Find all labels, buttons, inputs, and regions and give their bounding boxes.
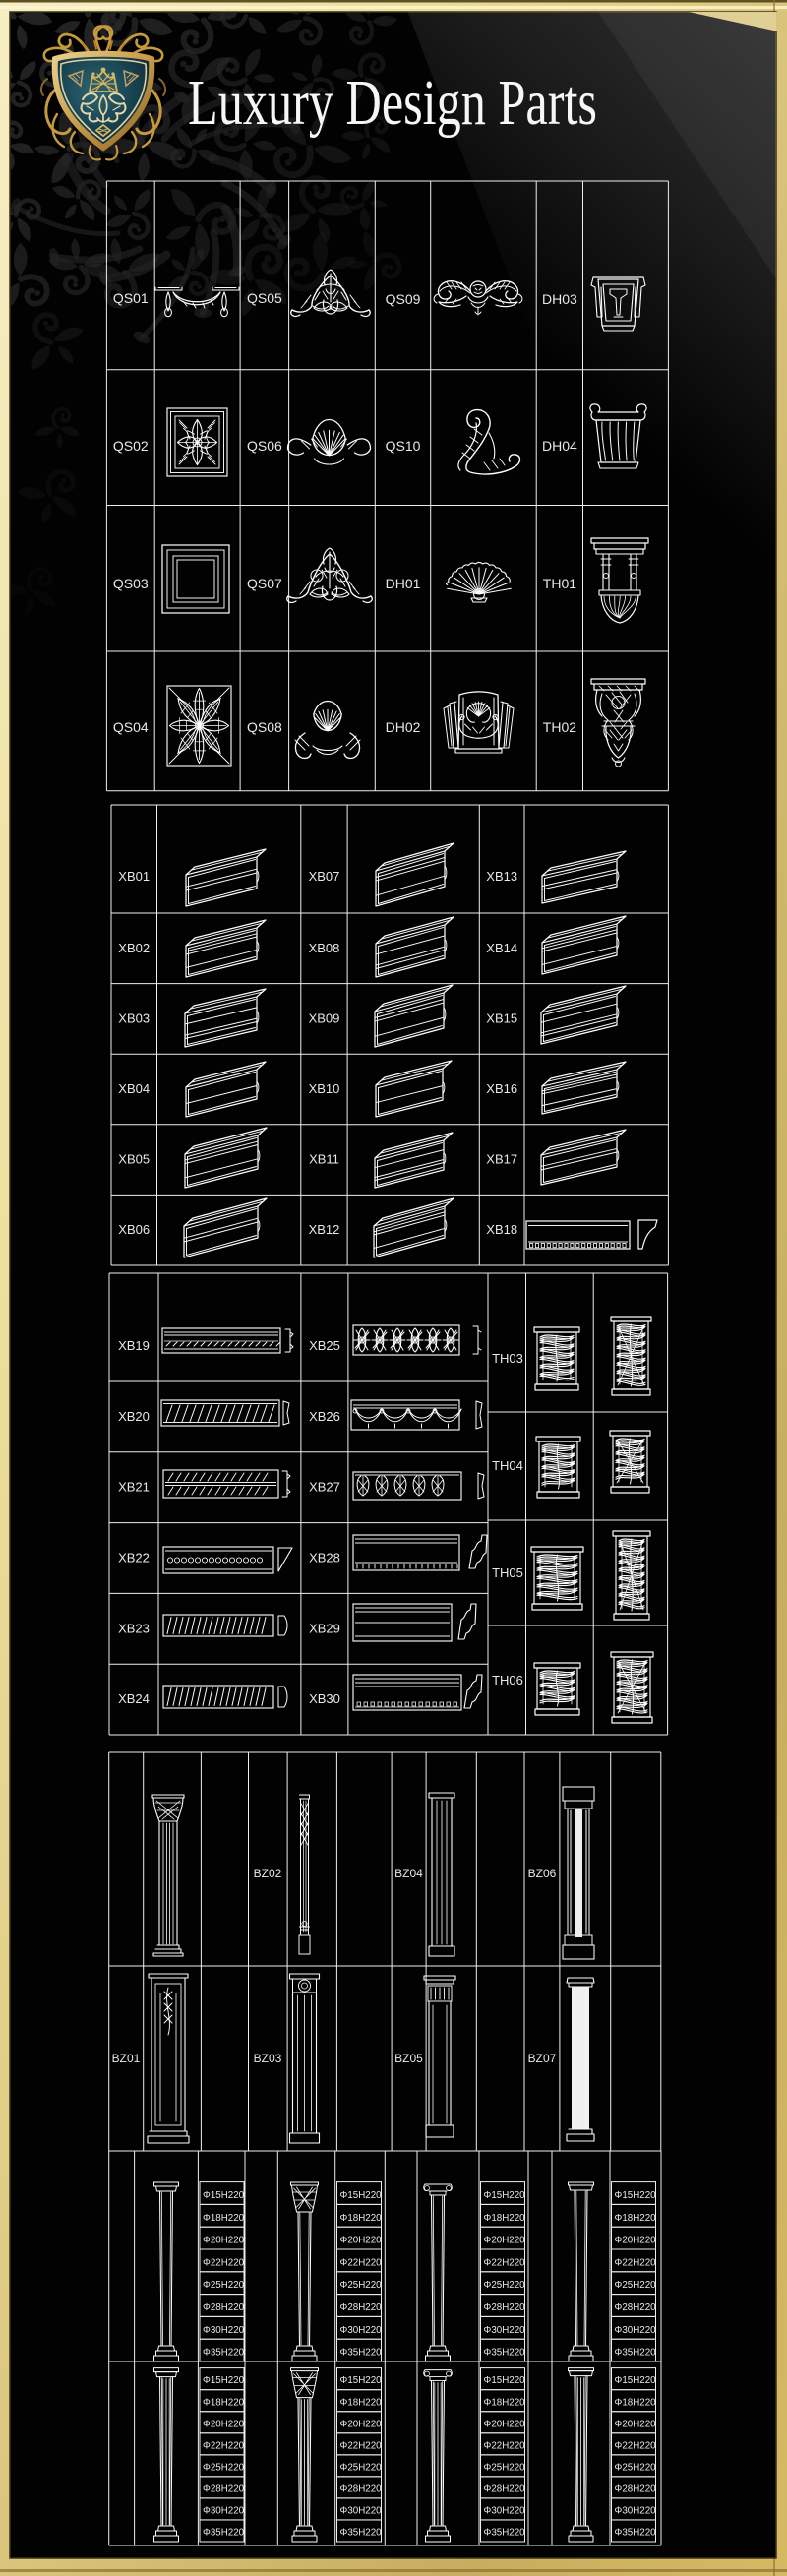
- svg-text:Φ30H220: Φ30H220: [484, 2506, 526, 2517]
- svg-text:Φ15H220: Φ15H220: [484, 2375, 526, 2386]
- svg-text:DH03: DH03: [542, 291, 577, 307]
- svg-text:QS07: QS07: [247, 576, 282, 591]
- svg-text:XB04: XB04: [118, 1081, 150, 1096]
- svg-text:XB11: XB11: [309, 1152, 339, 1167]
- svg-text:TH03: TH03: [492, 1351, 523, 1366]
- svg-text:Φ30H220: Φ30H220: [484, 2325, 526, 2336]
- svg-text:XB09: XB09: [309, 1011, 340, 1025]
- svg-text:Φ18H220: Φ18H220: [484, 2397, 526, 2408]
- svg-text:Φ15H220: Φ15H220: [615, 2375, 657, 2386]
- svg-text:Φ30H220: Φ30H220: [340, 2506, 383, 2517]
- svg-text:Φ15H220: Φ15H220: [203, 2190, 245, 2201]
- svg-text:QS08: QS08: [247, 719, 282, 735]
- svg-text:XB08: XB08: [309, 941, 340, 955]
- svg-text:XB27: XB27: [309, 1480, 340, 1495]
- svg-text:Φ30H220: Φ30H220: [615, 2325, 657, 2336]
- svg-text:Φ20H220: Φ20H220: [203, 2236, 245, 2246]
- svg-text:QS03: QS03: [113, 576, 149, 591]
- svg-text:Φ28H220: Φ28H220: [340, 2484, 383, 2495]
- svg-text:Φ18H220: Φ18H220: [203, 2213, 245, 2224]
- svg-text:Φ25H220: Φ25H220: [203, 2280, 245, 2291]
- svg-text:Φ25H220: Φ25H220: [340, 2280, 383, 2291]
- svg-text:TH06: TH06: [492, 1673, 523, 1687]
- svg-text:Φ25H220: Φ25H220: [484, 2280, 526, 2291]
- svg-text:XB21: XB21: [118, 1480, 150, 1495]
- svg-text:Φ25H220: Φ25H220: [484, 2462, 526, 2473]
- svg-text:QS05: QS05: [247, 290, 282, 306]
- svg-text:Φ20H220: Φ20H220: [203, 2419, 245, 2429]
- svg-text:BZ07: BZ07: [528, 2052, 557, 2065]
- svg-text:XB06: XB06: [118, 1222, 150, 1237]
- svg-text:Φ30H220: Φ30H220: [203, 2506, 245, 2517]
- svg-text:Φ18H220: Φ18H220: [340, 2397, 383, 2408]
- svg-text:Φ22H220: Φ22H220: [340, 2257, 383, 2268]
- svg-text:XB03: XB03: [118, 1011, 150, 1025]
- svg-text:BZ03: BZ03: [254, 2052, 282, 2065]
- svg-text:Φ15H220: Φ15H220: [340, 2375, 383, 2386]
- svg-text:QS06: QS06: [247, 438, 282, 454]
- svg-text:XB05: XB05: [118, 1152, 150, 1167]
- svg-text:XB16: XB16: [486, 1081, 517, 1096]
- svg-text:XB14: XB14: [486, 941, 517, 955]
- svg-text:Φ35H220: Φ35H220: [484, 2528, 526, 2539]
- svg-text:TH01: TH01: [543, 576, 576, 591]
- svg-text:Φ18H220: Φ18H220: [203, 2397, 245, 2408]
- svg-text:Luxury Design Parts: Luxury Design Parts: [188, 67, 597, 139]
- svg-text:Φ22H220: Φ22H220: [484, 2440, 526, 2451]
- svg-text:BZ05: BZ05: [394, 2052, 423, 2065]
- svg-text:Φ25H220: Φ25H220: [340, 2462, 383, 2473]
- svg-text:Φ18H220: Φ18H220: [615, 2397, 657, 2408]
- svg-text:Φ18H220: Φ18H220: [340, 2213, 383, 2224]
- svg-text:Φ22H220: Φ22H220: [615, 2440, 657, 2451]
- svg-text:Φ28H220: Φ28H220: [484, 2302, 526, 2313]
- svg-text:Φ25H220: Φ25H220: [615, 2280, 657, 2291]
- svg-text:XB17: XB17: [486, 1152, 517, 1167]
- svg-text:Φ22H220: Φ22H220: [340, 2440, 383, 2451]
- svg-text:Φ20H220: Φ20H220: [615, 2419, 657, 2429]
- svg-text:TH02: TH02: [543, 719, 576, 735]
- svg-text:XB23: XB23: [118, 1621, 150, 1635]
- svg-text:QS01: QS01: [113, 290, 149, 306]
- svg-text:Φ20H220: Φ20H220: [484, 2236, 526, 2246]
- svg-text:BZ04: BZ04: [394, 1867, 423, 1880]
- svg-text:XB18: XB18: [486, 1222, 517, 1237]
- svg-text:XB28: XB28: [309, 1551, 340, 1565]
- svg-text:Φ35H220: Φ35H220: [203, 2528, 245, 2539]
- svg-text:DH02: DH02: [386, 719, 421, 735]
- svg-text:Φ20H220: Φ20H220: [484, 2419, 526, 2429]
- svg-text:XB13: XB13: [486, 869, 517, 884]
- svg-text:XB20: XB20: [118, 1409, 150, 1424]
- svg-text:Φ28H220: Φ28H220: [484, 2484, 526, 2495]
- svg-text:XB26: XB26: [309, 1409, 340, 1424]
- svg-text:Φ30H220: Φ30H220: [340, 2325, 383, 2336]
- svg-text:QS04: QS04: [113, 719, 149, 735]
- svg-text:Φ28H220: Φ28H220: [340, 2302, 383, 2313]
- svg-text:Φ25H220: Φ25H220: [615, 2462, 657, 2473]
- svg-text:DH01: DH01: [386, 576, 421, 591]
- svg-text:XB01: XB01: [118, 869, 150, 884]
- svg-text:Φ20H220: Φ20H220: [340, 2419, 383, 2429]
- svg-text:Φ15H220: Φ15H220: [340, 2190, 383, 2201]
- svg-text:Φ20H220: Φ20H220: [615, 2236, 657, 2246]
- svg-text:BZ02: BZ02: [254, 1867, 282, 1880]
- svg-text:Φ28H220: Φ28H220: [203, 2484, 245, 2495]
- svg-text:Φ18H220: Φ18H220: [484, 2213, 526, 2224]
- svg-text:Φ15H220: Φ15H220: [615, 2190, 657, 2201]
- svg-text:Φ35H220: Φ35H220: [615, 2528, 657, 2539]
- svg-text:Φ28H220: Φ28H220: [615, 2484, 657, 2495]
- svg-text:Φ35H220: Φ35H220: [615, 2348, 657, 2359]
- svg-text:TH04: TH04: [492, 1458, 523, 1473]
- svg-text:XB29: XB29: [309, 1621, 340, 1635]
- svg-text:XB25: XB25: [309, 1338, 340, 1353]
- svg-text:Φ15H220: Φ15H220: [203, 2375, 245, 2386]
- svg-text:Φ15H220: Φ15H220: [484, 2190, 526, 2201]
- svg-text:Φ22H220: Φ22H220: [484, 2257, 526, 2268]
- svg-text:Φ35H220: Φ35H220: [340, 2528, 383, 2539]
- svg-text:Φ22H220: Φ22H220: [615, 2257, 657, 2268]
- svg-text:XB02: XB02: [118, 941, 150, 955]
- svg-text:Φ35H220: Φ35H220: [203, 2348, 245, 2359]
- svg-text:Φ22H220: Φ22H220: [203, 2440, 245, 2451]
- svg-text:BZ06: BZ06: [528, 1867, 557, 1880]
- svg-text:Φ35H220: Φ35H220: [484, 2348, 526, 2359]
- svg-text:Φ28H220: Φ28H220: [203, 2302, 245, 2313]
- svg-text:XB07: XB07: [309, 869, 340, 884]
- svg-text:QS02: QS02: [113, 438, 149, 454]
- svg-text:XB12: XB12: [309, 1222, 340, 1237]
- svg-text:Φ18H220: Φ18H220: [615, 2213, 657, 2224]
- svg-text:XB22: XB22: [118, 1551, 150, 1565]
- svg-text:XB19: XB19: [118, 1338, 150, 1353]
- svg-text:Φ30H220: Φ30H220: [203, 2325, 245, 2336]
- svg-text:XB24: XB24: [118, 1691, 150, 1706]
- svg-text:Φ35H220: Φ35H220: [340, 2348, 383, 2359]
- svg-text:BZ01: BZ01: [112, 2052, 141, 2065]
- svg-text:QS09: QS09: [386, 291, 421, 307]
- svg-text:Φ30H220: Φ30H220: [615, 2506, 657, 2517]
- svg-text:XB30: XB30: [309, 1691, 340, 1706]
- svg-text:Φ28H220: Φ28H220: [615, 2302, 657, 2313]
- svg-text:QS10: QS10: [386, 438, 421, 454]
- svg-text:Φ22H220: Φ22H220: [203, 2257, 245, 2268]
- svg-text:DH04: DH04: [542, 438, 577, 454]
- svg-text:Φ25H220: Φ25H220: [203, 2462, 245, 2473]
- svg-text:XB15: XB15: [486, 1011, 517, 1025]
- svg-text:Φ20H220: Φ20H220: [340, 2236, 383, 2246]
- svg-text:TH05: TH05: [492, 1565, 523, 1580]
- svg-text:XB10: XB10: [309, 1081, 340, 1096]
